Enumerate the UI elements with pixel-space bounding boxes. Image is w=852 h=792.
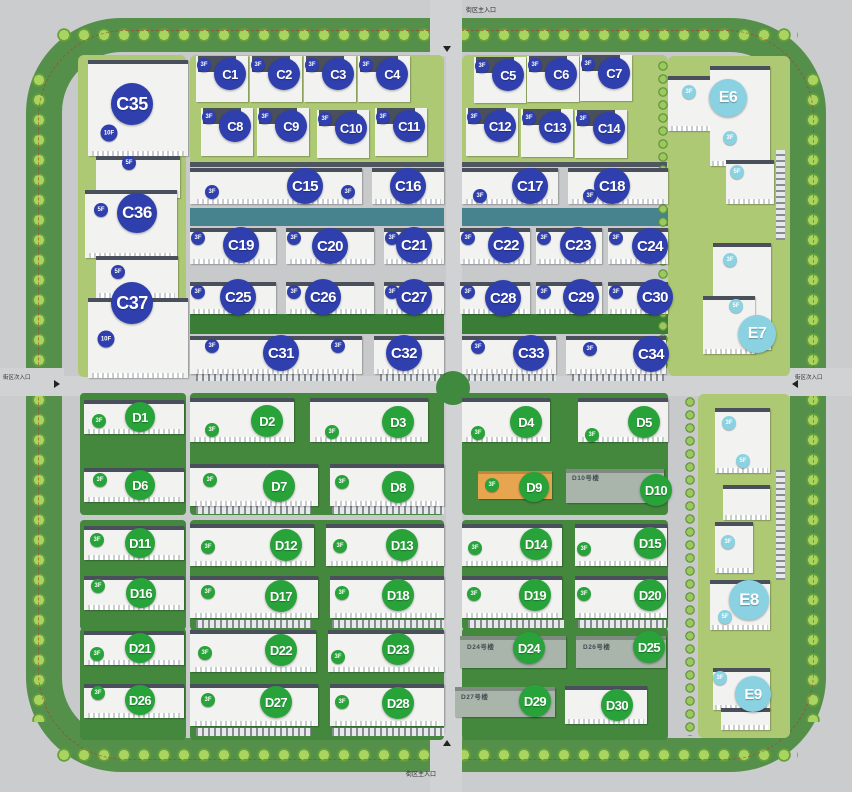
badge-D5[interactable]: D5 [628,406,660,438]
badge-E7[interactable]: E7 [738,315,776,353]
parking-row [196,620,311,628]
floor-badge: 3F [485,478,499,492]
floor-badge: 3F [723,131,737,145]
parking-row [332,728,444,736]
badge-E9[interactable]: E9 [735,676,771,712]
floor-badge: 3F [471,340,485,354]
badge-D14[interactable]: D14 [520,528,552,560]
floor-badge: 3F [201,540,215,554]
floor-badge: 5F [730,165,744,179]
tree-row [657,60,668,370]
badge-C31[interactable]: C31 [263,335,299,371]
badge-C27[interactable]: C27 [396,279,432,315]
entrance-label-east: 街区次入口 [795,373,823,381]
badge-C13[interactable]: C13 [539,111,571,143]
building-E8-shape [715,522,753,573]
floor-badge: 3F [325,425,339,439]
floor-badge: 3F [198,646,212,660]
badge-D22[interactable]: D22 [265,634,297,666]
landscape-strip-teal [190,208,444,226]
floor-badge: 3F [205,339,219,353]
floor-badge: 3F [359,58,373,72]
parking-row [578,620,666,628]
badge-D29[interactable]: D29 [519,685,551,717]
floor-badge: 10F [101,125,118,142]
entrance-label-south: 街区主入口 [406,769,436,778]
floor-badge: 3F [318,112,332,126]
floor-badge: 3F [333,539,347,553]
badge-D9[interactable]: D9 [519,472,549,502]
landscape-strip-teal [462,208,668,226]
floor-badge: 3F [461,231,475,245]
badge-D6[interactable]: D6 [125,470,155,500]
badge-D2[interactable]: D2 [251,405,283,437]
floor-badge: 3F [335,586,349,600]
badge-C35[interactable]: C35 [111,83,153,125]
parking-row [332,506,444,514]
badge-C19[interactable]: C19 [223,227,259,263]
floor-badge: 3F [376,110,390,124]
badge-C17[interactable]: C17 [512,168,548,204]
badge-D1[interactable]: D1 [125,402,155,432]
floor-badge: 3F [205,185,219,199]
badge-D30[interactable]: D30 [601,689,633,721]
entrance-arrow [54,380,60,388]
badge-D13[interactable]: D13 [386,529,418,561]
floor-badge: 3F [577,542,591,556]
badge-D28[interactable]: D28 [382,687,414,719]
badge-D17[interactable]: D17 [265,580,297,612]
floor-badge: 3F [528,58,542,72]
floor-badge: 3F [205,423,219,437]
floor-badge: 3F [467,110,481,124]
entrance-arrow [443,740,451,746]
badge-C22[interactable]: C22 [488,227,524,263]
floor-badge: 3F [585,428,599,442]
badge-D12[interactable]: D12 [270,529,302,561]
badge-C2[interactable]: C2 [268,58,300,90]
floor-badge: 3F [723,253,737,267]
badge-C7[interactable]: C7 [598,57,630,89]
floor-badge: 3F [201,585,215,599]
floor-badge: 3F [258,110,272,124]
entrance-arrow [443,46,451,52]
floor-badge: 5F [122,156,136,170]
badge-C15[interactable]: C15 [287,168,323,204]
floor-badge: 3F [583,342,597,356]
floor-badge: 3F [251,58,265,72]
floor-badge: 5F [111,265,125,279]
badge-D24[interactable]: D24 [513,632,545,664]
entrance-label-west: 街区次入口 [3,373,31,381]
pergola-wall [462,162,667,167]
floor-badge: 3F [537,231,551,245]
badge-C37[interactable]: C37 [111,282,153,324]
floor-badge: 3F [203,473,217,487]
badge-C28[interactable]: C28 [485,280,521,316]
badge-C12[interactable]: C12 [484,110,516,142]
floor-badge: 3F [287,285,301,299]
badge-D21[interactable]: D21 [125,633,155,663]
floor-badge: 3F [92,414,106,428]
badge-D7[interactable]: D7 [263,470,295,502]
badge-C16[interactable]: C16 [390,168,426,204]
badge-D27[interactable]: D27 [260,686,292,718]
badge-C6[interactable]: C6 [545,58,577,90]
floor-badge: 5F [729,299,743,313]
floor-badge: 3F [197,58,211,72]
floor-badge: 3F [609,231,623,245]
pergola-wall [190,162,444,167]
floor-badge: 3F [473,189,487,203]
badge-D10[interactable]: D10 [640,474,672,506]
badge-C9[interactable]: C9 [275,110,307,142]
floor-badge: 3F [576,112,590,126]
parking-row [572,374,664,381]
parking-row [468,374,556,381]
floor-badge: 3F [609,285,623,299]
floor-badge: 3F [577,587,591,601]
badge-D3[interactable]: D3 [382,406,414,438]
floor-badge: 3F [722,416,736,430]
badge-C3[interactable]: C3 [322,58,354,90]
site-plan: 街区主入口 街区主入口 街区次入口 街区次入口 3FC13FC23FC33FC4… [0,0,852,792]
floor-badge: 3F [191,231,205,245]
floor-badge: 3F [331,339,345,353]
badge-C32[interactable]: C32 [386,335,422,371]
entrance-arrow [792,380,798,388]
floor-badge: 3F [202,110,216,124]
parking-row [196,728,311,736]
entrance-label-north: 街区主入口 [466,5,496,14]
badge-C25[interactable]: C25 [220,279,256,315]
building-E9-shape [721,708,770,730]
floor-badge: 3F [335,695,349,709]
badge-D16[interactable]: D16 [126,578,156,608]
badge-C21[interactable]: C21 [396,227,432,263]
parking-row [196,506,311,514]
floor-badge: 5F [718,610,732,624]
building-E8-shape [723,485,770,520]
parking-row [776,470,785,580]
badge-D15[interactable]: D15 [634,527,666,559]
badge-D26[interactable]: D26 [125,685,155,715]
parking-row [332,620,444,628]
floor-badge: 3F [335,475,349,489]
floor-badge: 3F [537,285,551,299]
badge-C24[interactable]: C24 [632,228,668,264]
badge-C18[interactable]: C18 [594,168,630,204]
badge-C20[interactable]: C20 [312,228,348,264]
floor-badge: 3F [331,650,345,664]
floor-badge: 3F [713,671,727,685]
badge-D8[interactable]: D8 [382,471,414,503]
floor-badge: 3F [91,579,105,593]
badge-C10[interactable]: C10 [335,112,367,144]
badge-C33[interactable]: C33 [513,335,549,371]
floor-badge: 3F [467,587,481,601]
floor-badge: 3F [581,57,595,71]
badge-C11[interactable]: C11 [393,110,425,142]
floor-badge: 3F [91,686,105,700]
building-label-D29: D27号楼 [461,691,488,701]
floor-badge: 3F [475,59,489,73]
badge-E6[interactable]: E6 [709,79,747,117]
floor-badge: 3F [201,693,215,707]
building-label-D10: D10号楼 [572,472,599,482]
badge-C23[interactable]: C23 [560,227,596,263]
tree-row [684,396,695,736]
badge-C5[interactable]: C5 [492,59,524,91]
floor-badge: 3F [90,533,104,547]
floor-badge: 3F [90,647,104,661]
floor-badge: 3F [721,535,735,549]
floor-badge: 3F [471,426,485,440]
floor-badge: 3F [682,85,696,99]
floor-badge: 3F [522,111,536,125]
floor-badge: 5F [736,454,750,468]
floor-badge: 3F [341,185,355,199]
floor-badge: 3F [305,58,319,72]
floor-badge: 3F [191,285,205,299]
floor-badge: 3F [468,541,482,555]
badge-C30[interactable]: C30 [637,279,673,315]
floor-badge: 5F [94,203,108,217]
landscape-strip-green [190,314,444,334]
badge-C14[interactable]: C14 [593,112,625,144]
badge-C34[interactable]: C34 [633,336,669,372]
floor-badge: 3F [461,285,475,299]
badge-D20[interactable]: D20 [634,579,666,611]
badge-D23[interactable]: D23 [382,633,414,665]
parking-row [776,150,785,240]
parking-row [380,374,444,381]
parking-row [196,374,356,381]
badge-C26[interactable]: C26 [305,279,341,315]
floor-badge: 3F [287,231,301,245]
building-label-D25: D26号楼 [583,641,610,651]
badge-D25[interactable]: D25 [633,631,665,663]
badge-D4[interactable]: D4 [510,406,542,438]
badge-D19[interactable]: D19 [519,579,551,611]
badge-D11[interactable]: D11 [125,528,155,558]
badge-C1[interactable]: C1 [214,58,246,90]
floor-badge: 3F [93,473,107,487]
building-label-D24: D24号楼 [467,641,494,651]
badge-D18[interactable]: D18 [382,579,414,611]
badge-C29[interactable]: C29 [563,279,599,315]
parking-row [468,620,564,628]
badge-C4[interactable]: C4 [376,58,408,90]
badge-E8[interactable]: E8 [729,580,769,620]
badge-C8[interactable]: C8 [219,110,251,142]
floor-badge: 10F [98,331,115,348]
landscape-strip-green [462,314,668,334]
badge-C36[interactable]: C36 [117,193,157,233]
